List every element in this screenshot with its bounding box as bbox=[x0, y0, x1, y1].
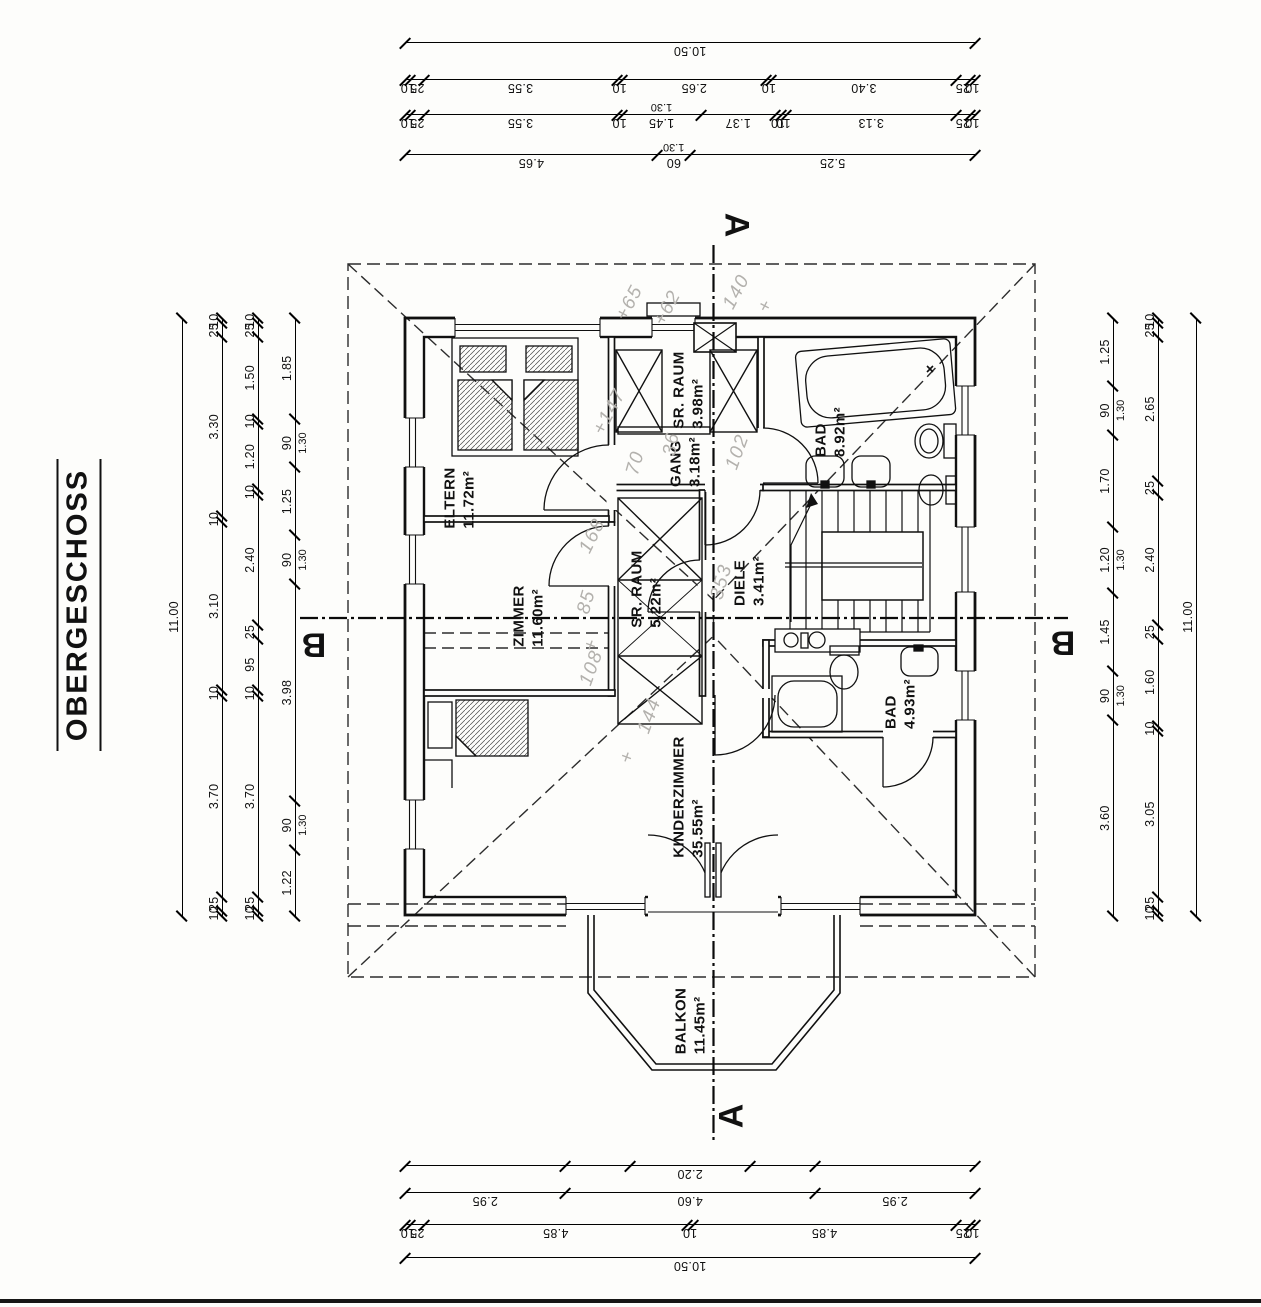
dim-chain-left-total: 11.00 bbox=[158, 318, 184, 916]
dim-chain-left-2: 10253.70103.10103.302510 bbox=[198, 318, 224, 916]
room-label-diele: DIELE3.41m² bbox=[731, 556, 769, 606]
dim-chain-bottom-total: 10.50 bbox=[405, 1256, 975, 1282]
dim-chain-bottom-2: 2.954.602.95 bbox=[405, 1191, 975, 1217]
section-marker-a-bottom: A bbox=[713, 1104, 752, 1129]
room-label-eltern: ELTERN11.72m² bbox=[441, 467, 479, 528]
dim-chain-bottom-3: 10254.85104.852510 bbox=[405, 1223, 975, 1249]
utility-unit bbox=[775, 629, 860, 652]
room-label-kinderzimmer: KINDERZIMMER35.55m² bbox=[670, 736, 708, 857]
room-label-zimmer: ZIMMER11.60m² bbox=[510, 585, 548, 647]
dim-chain-top-4: 5.25601.304.65 bbox=[405, 153, 975, 179]
dim-chain-top-total: 10.50 bbox=[405, 41, 975, 67]
dim-chain-top-2: 10253.40102.65103.552510 bbox=[405, 78, 975, 104]
section-marker-a-top: A bbox=[717, 213, 756, 238]
dim-chain-right-1: 3.60901.301.451.201.301.70901.301.25 bbox=[1089, 318, 1115, 916]
single-bed bbox=[424, 700, 528, 788]
pencil-note: 36 bbox=[659, 430, 685, 458]
dim-chain-left-3: 10253.701095252.40101.20101.502510 bbox=[234, 318, 260, 916]
room-label-sr-raum-2: SR. RAUM5.22m² bbox=[628, 550, 666, 627]
chimney bbox=[694, 323, 736, 352]
scan-edge-bar bbox=[0, 1299, 1261, 1303]
room-label-balkon: BALKON11.45m² bbox=[672, 988, 710, 1055]
room-label-sr-raum-1: SR. RAUM3.98m² bbox=[670, 351, 708, 428]
room-label-bad-upper: BAD8.92m² bbox=[812, 407, 850, 457]
double-bed bbox=[452, 338, 578, 456]
dim-chain-right-total: 11.00 bbox=[1172, 318, 1198, 916]
room-label-bad-lower: BAD4.93m² bbox=[882, 679, 920, 729]
dim-chain-bottom-1: 2.20 bbox=[405, 1164, 975, 1190]
dim-chain-top-3: 10253.1310101.371.451.30103.552510 bbox=[405, 113, 975, 139]
wc-and-bidet bbox=[915, 424, 956, 505]
page-title: OBERGESCHOSS bbox=[57, 459, 102, 751]
section-marker-b-right: B bbox=[1051, 623, 1076, 662]
dim-chain-left-4: 1.22901.303.98901.301.25901.301.85 bbox=[271, 318, 297, 916]
double-washbasin bbox=[806, 456, 890, 488]
floor-plan-sheet: OBERGESCHOSS A A B B ELTERN11.72m² SR. R… bbox=[0, 0, 1261, 1307]
section-marker-b-left: B bbox=[302, 625, 327, 664]
staircase bbox=[785, 491, 930, 632]
dim-chain-right-2: 10253.05101.60252.40252.652510 bbox=[1134, 318, 1160, 916]
